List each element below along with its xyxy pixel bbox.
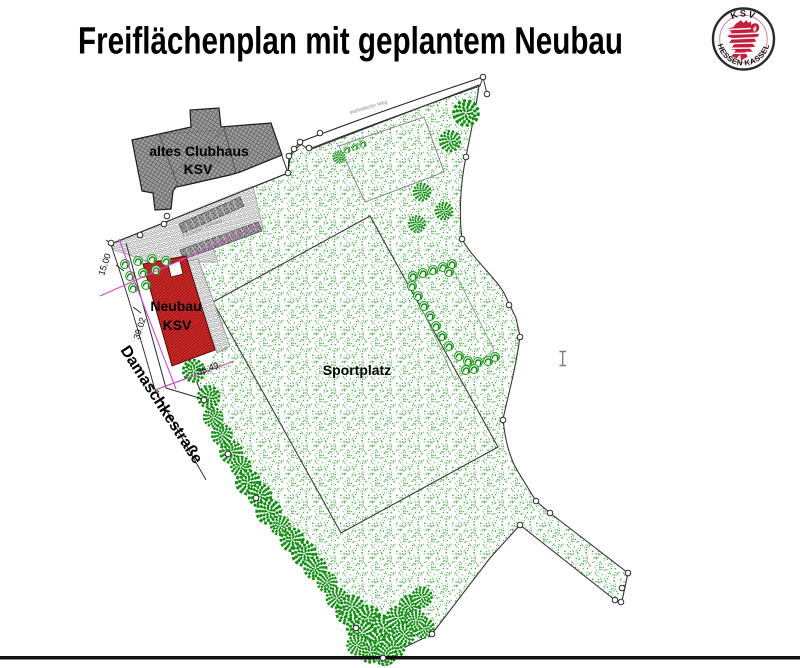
svg-text:39.02: 39.02 — [131, 316, 147, 341]
svg-text:15.00: 15.00 — [96, 252, 112, 277]
svg-text:Freiflächenplan mit geplantem: Freiflächenplan mit geplantem Neubau — [78, 21, 623, 63]
svg-text:Sportplatz: Sportplatz — [323, 362, 391, 378]
svg-text:Neubau: Neubau — [150, 298, 201, 314]
svg-text:altes Clubhaus: altes Clubhaus — [149, 143, 249, 159]
svg-text:KSV: KSV — [184, 161, 213, 177]
svg-text:KSV: KSV — [163, 317, 192, 333]
svg-text:asphaltierter Weg: asphaltierter Weg — [349, 99, 388, 116]
